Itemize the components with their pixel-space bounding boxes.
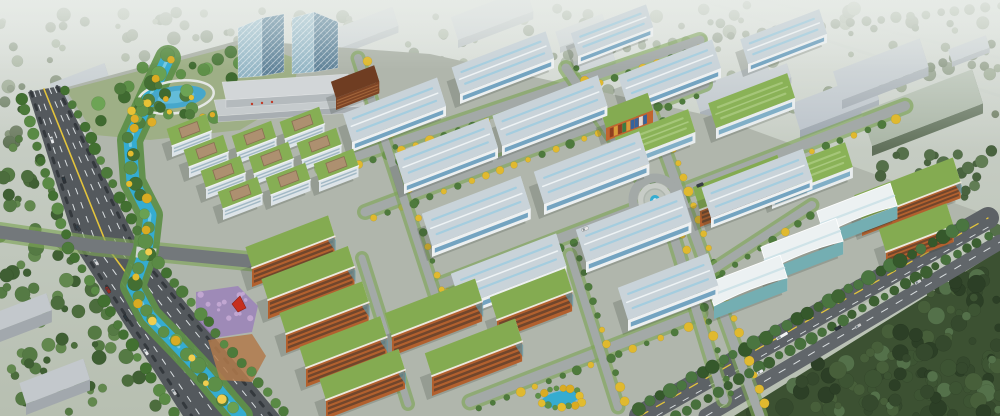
tree bbox=[131, 115, 139, 123]
tree bbox=[88, 326, 102, 340]
tree bbox=[728, 350, 737, 359]
tree bbox=[809, 149, 815, 155]
tree bbox=[72, 305, 85, 318]
tree bbox=[728, 390, 734, 396]
tree bbox=[168, 407, 179, 416]
tree bbox=[970, 294, 978, 302]
tree bbox=[969, 337, 976, 344]
layer-haze-top bbox=[0, 0, 1000, 70]
tree bbox=[122, 132, 133, 143]
tree bbox=[594, 312, 600, 318]
tree bbox=[599, 327, 605, 333]
tree bbox=[208, 377, 223, 392]
tree bbox=[3, 283, 11, 291]
tree bbox=[864, 370, 882, 388]
tree bbox=[747, 336, 761, 350]
tree bbox=[188, 354, 195, 361]
tree bbox=[40, 168, 50, 178]
tree bbox=[27, 128, 39, 140]
tree bbox=[775, 398, 793, 416]
tree bbox=[961, 186, 971, 196]
tree bbox=[3, 189, 15, 201]
tree bbox=[893, 253, 908, 268]
tree bbox=[918, 301, 931, 314]
tree bbox=[105, 306, 116, 317]
tree bbox=[152, 256, 165, 269]
tree bbox=[924, 149, 936, 161]
tree bbox=[629, 345, 637, 353]
tree bbox=[158, 326, 169, 337]
mosaic-tile bbox=[643, 114, 647, 125]
flower-dot bbox=[217, 302, 222, 307]
tree bbox=[169, 278, 179, 288]
tree bbox=[126, 338, 139, 351]
mosaic-tile bbox=[614, 126, 618, 137]
tree bbox=[540, 389, 548, 397]
tree bbox=[55, 218, 66, 229]
tree bbox=[203, 380, 209, 386]
tree bbox=[986, 145, 997, 156]
tree bbox=[560, 373, 566, 379]
tree bbox=[59, 273, 73, 287]
tree bbox=[831, 289, 845, 303]
tree bbox=[994, 406, 1000, 414]
tree bbox=[972, 172, 981, 181]
mosaic-tile bbox=[635, 118, 639, 129]
tree bbox=[133, 299, 142, 308]
tree bbox=[504, 394, 510, 400]
tree bbox=[900, 278, 911, 289]
tree bbox=[975, 155, 988, 168]
tree bbox=[953, 150, 963, 160]
tree bbox=[393, 144, 398, 149]
tree bbox=[415, 215, 422, 222]
tree bbox=[32, 142, 41, 151]
tree bbox=[171, 336, 181, 346]
tree bbox=[916, 244, 927, 255]
top-atmosphere bbox=[0, 0, 1000, 70]
tree bbox=[972, 238, 982, 248]
tree bbox=[114, 83, 126, 95]
tree bbox=[713, 387, 724, 398]
tree bbox=[21, 170, 34, 183]
tree bbox=[482, 172, 489, 179]
tree bbox=[588, 362, 594, 368]
tree bbox=[130, 124, 139, 133]
tree bbox=[785, 345, 796, 356]
tree bbox=[108, 179, 117, 188]
tree bbox=[620, 397, 629, 406]
tree bbox=[24, 359, 34, 369]
tree bbox=[745, 254, 751, 260]
tree bbox=[565, 403, 571, 409]
tree bbox=[24, 116, 36, 128]
tree bbox=[52, 250, 63, 261]
tree bbox=[920, 266, 932, 278]
tree bbox=[806, 211, 814, 219]
tree bbox=[962, 243, 971, 252]
tree bbox=[3, 199, 16, 212]
tree bbox=[565, 139, 574, 148]
tree bbox=[615, 382, 625, 392]
tree bbox=[15, 135, 23, 143]
tree bbox=[15, 286, 30, 301]
flower-dot bbox=[222, 300, 227, 305]
tree bbox=[947, 305, 956, 314]
tree bbox=[830, 384, 841, 395]
tree bbox=[144, 99, 152, 107]
tree bbox=[744, 368, 754, 378]
tree bbox=[370, 214, 377, 221]
tree bbox=[496, 166, 504, 174]
tree bbox=[65, 408, 73, 416]
tree bbox=[98, 384, 107, 393]
tree bbox=[585, 283, 593, 291]
tree bbox=[602, 340, 610, 348]
tree bbox=[884, 372, 892, 380]
tree bbox=[159, 393, 171, 405]
tree bbox=[679, 99, 685, 105]
flower-dot bbox=[238, 312, 242, 316]
tree bbox=[211, 328, 221, 338]
tree bbox=[694, 94, 700, 100]
tree bbox=[715, 347, 721, 353]
flower-dot bbox=[226, 315, 231, 320]
tree bbox=[589, 298, 596, 305]
tree bbox=[138, 234, 153, 249]
tree bbox=[546, 378, 552, 384]
tree bbox=[557, 403, 566, 412]
tree bbox=[69, 253, 79, 263]
tree bbox=[615, 350, 622, 357]
tree bbox=[91, 97, 105, 111]
tree bbox=[965, 373, 983, 391]
tree bbox=[547, 387, 552, 392]
tree bbox=[101, 167, 113, 179]
tree bbox=[71, 342, 78, 349]
tree bbox=[671, 329, 679, 337]
tree bbox=[204, 317, 214, 327]
tree bbox=[680, 174, 688, 182]
tree bbox=[23, 269, 31, 277]
tree bbox=[891, 114, 901, 124]
tree bbox=[847, 310, 856, 319]
tree bbox=[675, 160, 681, 166]
tree bbox=[74, 110, 82, 118]
tree bbox=[217, 394, 227, 404]
tree bbox=[126, 213, 137, 224]
tree bbox=[801, 307, 814, 320]
tree bbox=[902, 354, 910, 362]
flower-dot bbox=[247, 315, 253, 321]
flower-dot bbox=[197, 291, 203, 297]
tree bbox=[385, 210, 391, 216]
tree bbox=[139, 209, 150, 220]
tree bbox=[247, 367, 257, 377]
tree bbox=[927, 371, 938, 382]
tree bbox=[686, 371, 698, 383]
tree bbox=[875, 170, 886, 181]
tree bbox=[612, 369, 619, 376]
tree bbox=[42, 338, 56, 352]
tree bbox=[893, 324, 909, 340]
tree bbox=[572, 366, 582, 376]
tree bbox=[370, 156, 377, 163]
tree bbox=[85, 132, 97, 144]
tree bbox=[52, 203, 64, 215]
tree bbox=[781, 228, 789, 236]
tree bbox=[134, 97, 144, 107]
tree bbox=[658, 335, 664, 341]
tree bbox=[539, 151, 546, 158]
tree bbox=[60, 86, 69, 95]
tree bbox=[516, 387, 526, 397]
tree bbox=[858, 304, 866, 312]
tree bbox=[968, 275, 986, 293]
aerial-scene bbox=[0, 0, 1000, 416]
tree bbox=[88, 397, 97, 406]
tree bbox=[48, 191, 58, 201]
tree bbox=[469, 178, 475, 184]
tree bbox=[263, 388, 272, 397]
tree bbox=[132, 226, 142, 236]
tree bbox=[19, 104, 30, 115]
tree bbox=[56, 333, 69, 346]
tree bbox=[581, 136, 587, 142]
tree bbox=[132, 273, 139, 280]
tree bbox=[956, 362, 968, 374]
tree bbox=[708, 331, 718, 341]
tree bbox=[940, 360, 957, 377]
tree bbox=[838, 315, 849, 326]
tree bbox=[796, 376, 809, 389]
tree bbox=[113, 320, 122, 329]
tree bbox=[611, 74, 619, 82]
tree bbox=[720, 270, 726, 276]
tree bbox=[167, 109, 172, 114]
tree bbox=[105, 342, 116, 353]
tree bbox=[810, 401, 821, 412]
flower-dot bbox=[217, 308, 220, 311]
tree bbox=[794, 338, 806, 350]
tree bbox=[133, 353, 141, 361]
tree bbox=[731, 315, 737, 321]
tree bbox=[770, 325, 782, 337]
tree bbox=[145, 248, 152, 255]
tree bbox=[794, 220, 801, 227]
tree bbox=[607, 354, 616, 363]
tree bbox=[920, 385, 934, 399]
tree bbox=[663, 383, 678, 398]
tree bbox=[889, 394, 902, 407]
tree bbox=[677, 380, 687, 390]
tree bbox=[566, 385, 574, 393]
tree bbox=[278, 406, 288, 416]
tree bbox=[553, 146, 560, 153]
tree bbox=[253, 377, 264, 388]
industrial-park-rendering bbox=[0, 0, 1000, 416]
tree bbox=[704, 394, 713, 403]
tree bbox=[684, 187, 694, 197]
tree bbox=[691, 399, 701, 409]
tree bbox=[147, 118, 156, 127]
tree bbox=[145, 372, 156, 383]
tree bbox=[441, 189, 447, 195]
tree bbox=[962, 162, 974, 174]
tree bbox=[16, 93, 28, 105]
tree bbox=[665, 103, 673, 111]
tree bbox=[909, 328, 923, 342]
tree bbox=[571, 402, 579, 410]
mosaic-tile bbox=[627, 121, 631, 132]
tree bbox=[806, 332, 818, 344]
tree bbox=[719, 355, 729, 365]
tree bbox=[454, 183, 461, 190]
plaza-accent bbox=[261, 102, 263, 104]
tree bbox=[988, 356, 996, 364]
tree bbox=[889, 379, 901, 391]
tree bbox=[554, 386, 559, 391]
tree bbox=[684, 322, 694, 332]
tree bbox=[931, 262, 939, 270]
tree bbox=[124, 161, 138, 175]
tree bbox=[993, 296, 1000, 304]
mosaic-tile bbox=[610, 127, 614, 138]
tree bbox=[969, 181, 980, 192]
tree bbox=[532, 384, 538, 390]
tree bbox=[869, 296, 880, 307]
tree bbox=[95, 115, 106, 126]
tree bbox=[844, 284, 854, 294]
tree bbox=[935, 335, 951, 351]
flower-dot bbox=[244, 298, 248, 302]
tree bbox=[132, 262, 144, 274]
tree bbox=[861, 270, 876, 285]
tree bbox=[155, 82, 163, 90]
tree bbox=[645, 395, 656, 406]
tree bbox=[128, 151, 134, 157]
tree bbox=[732, 262, 738, 268]
tree bbox=[89, 143, 101, 155]
tree bbox=[96, 156, 105, 165]
tree bbox=[949, 382, 962, 395]
tree bbox=[148, 317, 157, 326]
tree bbox=[706, 245, 712, 251]
tree bbox=[744, 356, 754, 366]
tree bbox=[962, 312, 971, 321]
tree bbox=[705, 360, 719, 374]
tree bbox=[632, 402, 646, 416]
tree bbox=[434, 272, 441, 279]
tree bbox=[227, 402, 238, 413]
tree bbox=[560, 385, 567, 392]
flower-dot bbox=[241, 292, 245, 296]
tree bbox=[220, 340, 228, 348]
tree bbox=[953, 250, 962, 259]
tree bbox=[862, 395, 879, 412]
tree bbox=[176, 69, 186, 79]
tree bbox=[84, 275, 95, 286]
tree bbox=[7, 364, 16, 373]
tree bbox=[126, 181, 132, 187]
tree bbox=[185, 109, 195, 119]
tree bbox=[644, 341, 649, 346]
tree bbox=[127, 107, 136, 116]
tree bbox=[865, 127, 871, 133]
tree bbox=[210, 112, 216, 118]
tree bbox=[682, 406, 692, 416]
tree bbox=[956, 219, 969, 232]
tree bbox=[43, 357, 50, 364]
mosaic-tile bbox=[639, 116, 643, 127]
tree bbox=[25, 200, 36, 211]
tree bbox=[92, 350, 107, 365]
tree bbox=[187, 298, 196, 307]
tree bbox=[755, 385, 764, 394]
tree bbox=[916, 344, 933, 361]
tree bbox=[907, 250, 917, 260]
tree bbox=[61, 229, 71, 239]
tree bbox=[163, 96, 169, 102]
plaza-accent bbox=[251, 103, 253, 105]
tree bbox=[878, 120, 887, 129]
tree bbox=[829, 361, 847, 379]
tree bbox=[733, 373, 745, 385]
tree bbox=[734, 328, 743, 337]
tree bbox=[98, 295, 111, 308]
tree bbox=[0, 269, 13, 283]
tree bbox=[525, 157, 530, 162]
tree bbox=[553, 405, 558, 410]
tree bbox=[866, 348, 875, 357]
tree bbox=[775, 351, 783, 359]
tree bbox=[42, 177, 54, 189]
mosaic-tile bbox=[631, 119, 635, 130]
tree bbox=[237, 358, 247, 368]
tree bbox=[271, 398, 281, 408]
tree bbox=[68, 100, 77, 109]
tree bbox=[894, 368, 907, 381]
tree bbox=[91, 286, 100, 295]
tree bbox=[426, 193, 433, 200]
tree bbox=[511, 162, 518, 169]
tree bbox=[142, 193, 152, 203]
flower-dot bbox=[206, 302, 211, 307]
tree bbox=[782, 320, 793, 331]
tree bbox=[890, 286, 900, 296]
tree bbox=[37, 157, 46, 166]
tree bbox=[122, 375, 134, 387]
tree bbox=[9, 143, 18, 152]
tree bbox=[227, 347, 238, 358]
tree bbox=[51, 296, 65, 310]
tree bbox=[893, 152, 900, 159]
tree bbox=[80, 122, 90, 132]
mosaic-tile bbox=[622, 122, 626, 133]
tree bbox=[760, 399, 770, 409]
tree bbox=[835, 402, 842, 409]
tree bbox=[118, 330, 128, 340]
tree bbox=[724, 381, 733, 390]
tree bbox=[92, 341, 98, 347]
tree bbox=[62, 242, 74, 254]
tree bbox=[142, 226, 151, 235]
tree bbox=[538, 399, 546, 407]
tree bbox=[120, 201, 131, 212]
tree bbox=[161, 268, 172, 279]
tree bbox=[176, 286, 188, 298]
tree bbox=[763, 357, 775, 369]
